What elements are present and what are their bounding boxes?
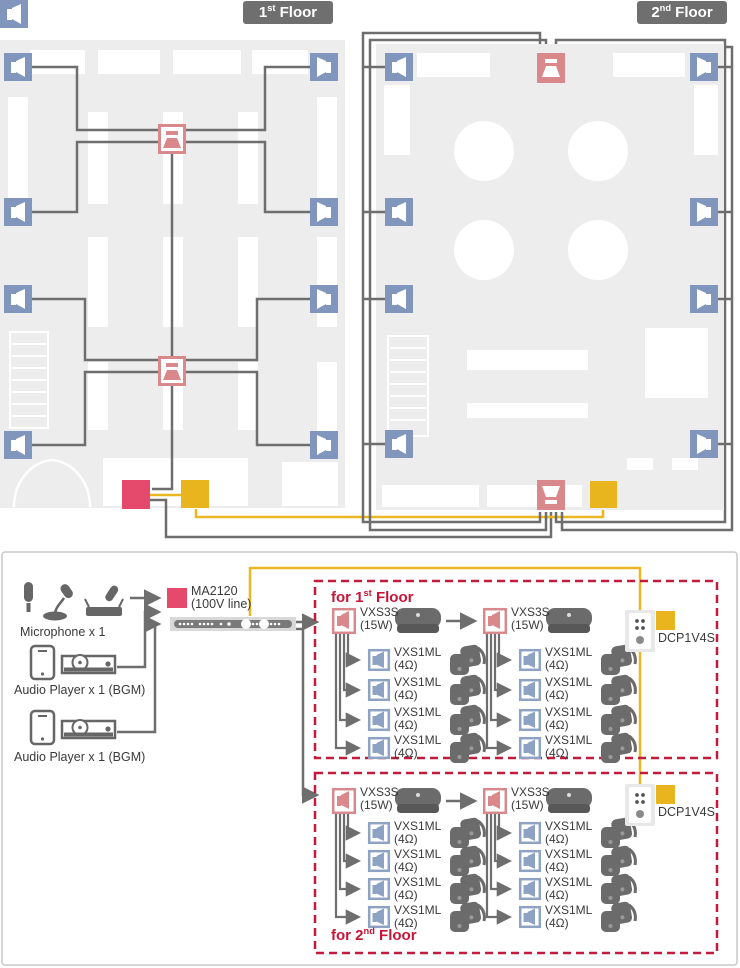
ceiling-speaker-icon — [333, 609, 355, 633]
installation-diagram: 1st Floor 2nd Floor Microphone x 1 Audio… — [0, 0, 740, 968]
vxs1ml-spec: (4Ω) — [545, 833, 569, 846]
vxs1ml-spec: (4Ω) — [394, 719, 418, 732]
surface-speaker-photo — [395, 788, 441, 813]
dcp-label: DCP1V4S — [658, 806, 715, 819]
amp-front-panel — [170, 617, 296, 631]
audio-player-2-label: Audio Player x 1 (BGM) — [14, 751, 145, 764]
vxs1ml-spec: (4Ω) — [545, 889, 569, 902]
wall-controller-plate — [625, 610, 655, 652]
vxs3s-spec: (15W) — [511, 619, 544, 632]
ceiling-speaker-icon — [484, 609, 506, 633]
controller-box — [590, 481, 617, 508]
vxs1ml-spec: (4Ω) — [394, 861, 418, 874]
vxs3s-spec: (15W) — [360, 799, 393, 812]
surface-speaker-photo — [546, 608, 592, 633]
dcp-label: DCP1V4S — [658, 632, 715, 645]
floor-plan-2nd — [363, 33, 732, 530]
vxs1ml-spec: (4Ω) — [394, 689, 418, 702]
amp-box — [122, 480, 150, 509]
vxs1ml-spec: (4Ω) — [545, 747, 569, 760]
vxs1ml-spec: (4Ω) — [545, 659, 569, 672]
audio-player-1-label: Audio Player x 1 (BGM) — [14, 684, 145, 697]
floor-1-badge: 1st Floor — [243, 1, 333, 24]
vxs1ml-spec: (4Ω) — [545, 861, 569, 874]
zone-first-floor-title: for 1st Floor — [331, 589, 413, 606]
vxs1ml-spec: (4Ω) — [394, 833, 418, 846]
vxs1ml-spec: (4Ω) — [394, 659, 418, 672]
vxs1ml-spec: (4Ω) — [394, 917, 418, 930]
ceiling-speaker-icon — [333, 789, 355, 813]
controller-box — [656, 611, 675, 630]
vxs1ml-spec: (4Ω) — [394, 889, 418, 902]
amp-note-label: (100V line) — [191, 598, 251, 611]
wall-speakers — [0, 0, 28, 28]
controller-box — [656, 785, 675, 804]
surface-speaker-photo — [395, 608, 441, 633]
microphone-label: Microphone x 1 — [20, 626, 105, 639]
controller-link-wire — [196, 509, 603, 517]
amp-box — [167, 588, 187, 608]
diagram-graphics — [0, 0, 740, 968]
controller-box — [181, 480, 209, 508]
vxs1ml-spec: (4Ω) — [394, 747, 418, 760]
surface-speaker-photo — [546, 788, 592, 813]
vxs1ml-spec: (4Ω) — [545, 689, 569, 702]
floor-2-badge: 2nd Floor — [637, 1, 727, 24]
wall-controller-plate — [625, 784, 655, 826]
vxs3s-spec: (15W) — [360, 619, 393, 632]
ceiling-speaker-icon — [484, 789, 506, 813]
vxs3s-spec: (15W) — [511, 799, 544, 812]
vxs1ml-spec: (4Ω) — [545, 719, 569, 732]
vxs1ml-spec: (4Ω) — [545, 917, 569, 930]
